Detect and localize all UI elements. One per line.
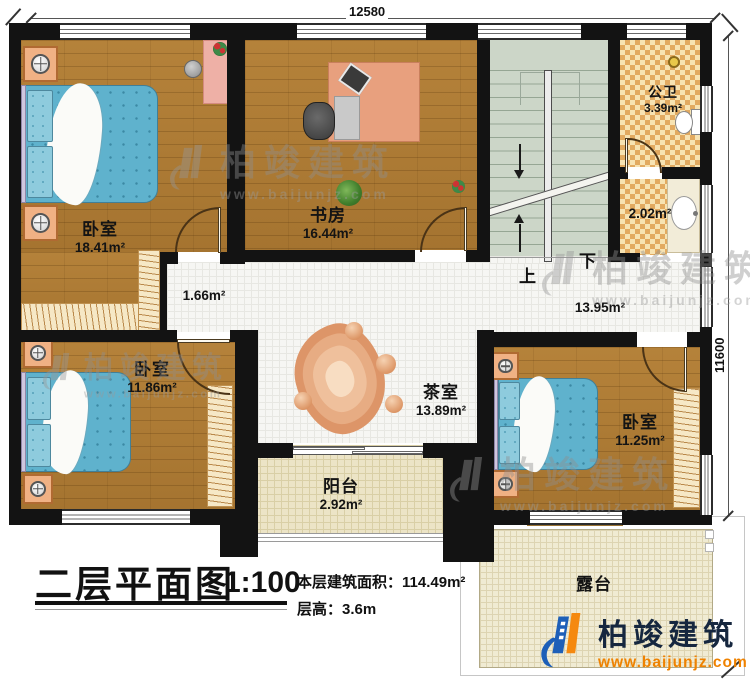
wall [167,252,178,264]
door-leaf-bathroom [625,138,628,173]
drawing-title: 二层平面图 [35,554,235,608]
pillow [499,426,520,464]
room-area: 13.89m² [416,403,466,419]
company-logo-icon [534,611,590,671]
drawing-scale: 1:100 [224,566,301,600]
wall [258,443,293,458]
room-label-balcony: 阳台 2.92m² [286,477,396,514]
stair-arrow-down-icon [514,170,524,179]
sliding-door-balcony [293,446,423,455]
pouf-seat [345,322,363,340]
headboard [494,378,498,470]
window [700,267,713,327]
room-label-bedroom3: 卧室 11.25m² [585,413,695,450]
flower-decor [452,180,465,193]
pillow [27,90,53,142]
dimension-line-right [728,36,729,516]
room-name: 卧室 [82,220,118,240]
bed-bedroom1 [21,85,158,203]
lamp-icon [498,359,512,374]
lamp-icon [30,481,46,497]
vanity-stool [184,60,202,78]
wall [466,250,477,262]
window [478,23,581,40]
room-label-study: 书房 16.44m² [273,206,383,243]
wall [9,509,62,525]
room-area: 13.95m² [575,300,625,316]
room-area: 16.44m² [303,226,353,242]
company-logo: 柏竣建筑 www.baijunjz.com [534,610,748,672]
stair-arrow-line [519,144,521,172]
wall [9,330,177,342]
company-logo-text: 柏竣建筑 www.baijunjz.com [598,610,748,672]
room-label-tearoom: 茶室 13.89m² [395,383,487,420]
pillow [27,377,51,420]
door-leaf-bedroom1 [218,207,221,253]
window [60,23,190,40]
room-name: 茶室 [423,383,459,403]
floor-corridor [167,262,700,332]
pillow [27,424,51,467]
room-area: 18.41m² [75,240,125,256]
window [62,509,190,525]
room-label-terrace: 露台 [554,575,634,595]
headboard [21,372,26,472]
lamp-icon [30,345,46,361]
nightstand-lamp [23,46,58,82]
company-website: www.baijunjz.com [598,654,748,672]
sink-tap [693,211,698,216]
wall [245,250,415,262]
room-area: 11.25m² [615,433,665,449]
corner-tick [721,13,738,32]
title-underline-thin [35,609,287,610]
window [627,23,686,40]
dimension-value-right: 11600 [712,335,727,376]
room-label-corridor: 13.95m² [555,300,645,316]
room-area: 3.39m² [644,101,682,115]
dimension-value-top: 12580 [346,4,388,19]
wall [230,330,258,342]
title-underline [35,601,287,605]
pouf-seat [376,354,396,374]
lamp-icon [31,54,50,74]
stair-down-label: 下 [579,247,596,272]
room-name: 书房 [310,206,346,226]
closet-bedroom1-bottom [21,303,140,333]
wall [9,23,21,525]
stair-arrow-up-icon [514,214,524,223]
plant-icon [336,180,362,206]
wall [477,23,490,262]
pillow [27,146,53,198]
sliding-panel [293,447,365,450]
room-name: 阳台 [323,477,359,497]
wall [220,252,245,264]
shower-fixture-icon [668,56,680,68]
floor-area-label: 本层建筑面积： [297,574,402,591]
lamp-icon [498,477,512,492]
pouf-seat [294,392,312,410]
window [530,510,622,525]
wall [581,23,627,40]
flower-decor [213,42,227,56]
wall [608,253,640,262]
floor-area-info: 本层建筑面积：114.49m² [297,571,465,592]
door-leaf-study [464,207,467,251]
wall-pillar [220,525,258,557]
office-chair [303,102,335,140]
door-leaf-bedroom3 [684,347,687,392]
room-name: 公卫 [648,84,678,101]
closet-bedroom1-side [138,250,160,333]
room-label-hallway: 1.66m² [164,288,244,304]
room-area: 2.92m² [320,497,363,513]
wall [477,332,637,347]
terrace-drain-box [705,530,714,539]
room-name: 卧室 [134,360,170,380]
company-name: 柏竣建筑 [598,610,748,654]
wall [687,332,712,347]
nightstand-lamp [23,474,53,504]
room-label-bedroom2: 卧室 11.86m² [97,360,207,397]
door-leaf-bedroom2 [177,339,230,343]
nightstand-lamp [23,338,53,368]
window [700,185,713,253]
wall [227,23,245,252]
wardrobe-bedroom2 [207,385,233,507]
floor-plan-canvas: 卧室 18.41m² 书房 16.44m² 公卫 3.39m² 2.02m² 1… [0,0,750,681]
terrace-drain-box [705,543,714,552]
room-label-bathroom: 公卫 3.39m² [623,84,703,115]
stair-handrail [544,70,552,262]
sliding-panel [352,451,424,454]
floor-area-value: 114.49m² [402,574,465,591]
nightstand-lamp [492,470,519,498]
wall-pillar [443,445,494,562]
bed-bedroom3 [494,378,598,470]
wall [622,510,712,525]
balcony-railing [233,533,460,542]
floor-height-info: 层高：3.6m [297,598,376,619]
room-area: 1.66m² [183,288,226,304]
wall [190,509,235,525]
wall [426,23,478,40]
stair-up-label: 上 [519,262,536,287]
room-label-bedroom1: 卧室 18.41m² [45,220,155,257]
floor-height-label: 层高： [297,601,342,618]
room-area: 2.02m² [629,206,672,222]
window [297,23,426,40]
wall [662,167,700,179]
floor-height-value: 3.6m [342,601,376,618]
room-name: 露台 [576,575,612,595]
window [700,455,713,515]
room-name: 卧室 [622,413,658,433]
wall [235,330,258,525]
nightstand-lamp [492,352,519,380]
pillow [499,382,520,420]
room-label-wash-area: 2.02m² [618,206,682,222]
headboard [21,85,26,203]
desk [334,96,360,140]
room-area: 11.86m² [127,380,177,396]
stair-arrow-line [519,224,521,252]
